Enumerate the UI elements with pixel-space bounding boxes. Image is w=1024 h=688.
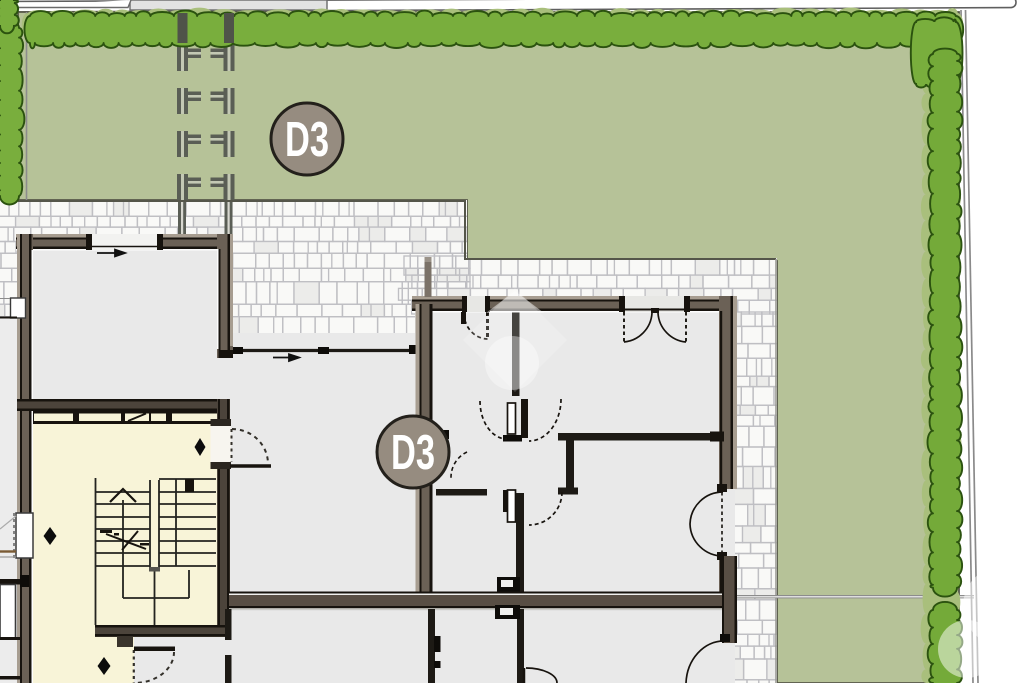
svg-text:D3: D3 (391, 426, 435, 480)
svg-text:D3: D3 (285, 113, 329, 167)
